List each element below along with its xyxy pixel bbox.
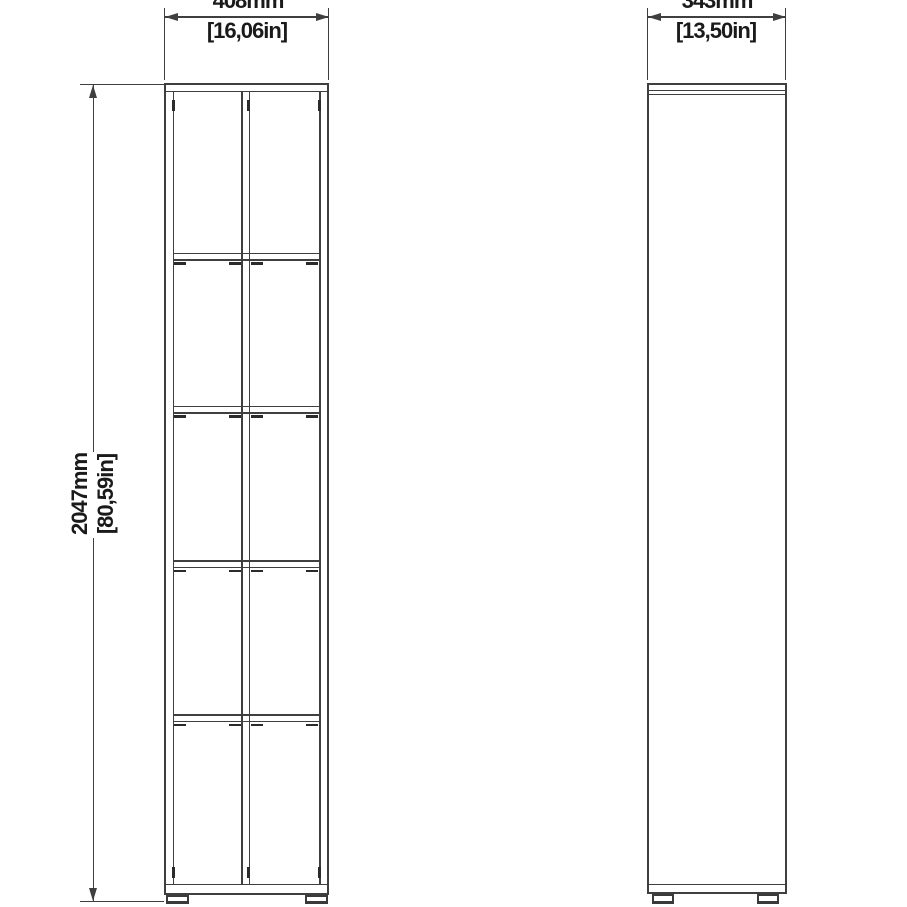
side-right-edge-line [785, 83, 787, 894]
side-top-board-bottom-line [647, 94, 787, 96]
dimension-drawing: 408mm [16,06in] 343mm [13,50in] 2047mm [… [0, 0, 907, 907]
side-top-board-line [647, 90, 787, 92]
side-right-foot [757, 894, 779, 904]
side-left-foot [652, 894, 674, 904]
side-plinth-top-line [647, 884, 787, 886]
side-view [0, 0, 907, 907]
side-top-edge-line [647, 83, 787, 85]
side-left-edge-line [647, 83, 649, 894]
